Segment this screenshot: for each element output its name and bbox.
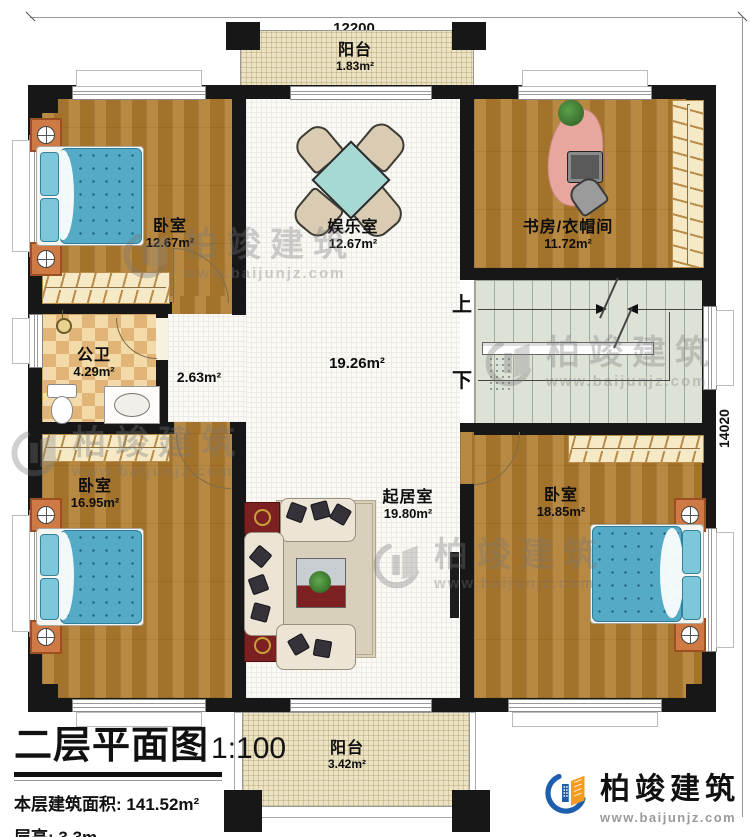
wall-corner [28, 684, 58, 712]
wardrobe-icon [42, 434, 170, 462]
floor-height-line: 层高: 3.3m [14, 823, 286, 837]
wall-corner [28, 85, 58, 113]
sliding-door [290, 86, 432, 100]
window-sill [12, 515, 30, 632]
wardrobe-icon [672, 100, 704, 268]
room-label-living: 起居室 19.80m² [358, 489, 458, 521]
wall-corner [686, 684, 716, 712]
toilet-icon [51, 396, 73, 424]
pillow-icon [40, 198, 59, 242]
pillow-icon [40, 578, 59, 620]
stair-landing-rail [482, 342, 654, 355]
window-sill [12, 140, 30, 252]
stair-direction-line [478, 380, 670, 381]
plant-icon [558, 100, 584, 126]
stairs-up-label: 上 [452, 288, 472, 317]
dimension-right-label: 14020 [716, 378, 732, 448]
wall-segment [460, 268, 716, 280]
brand-site: www.baijunjz.com [600, 810, 740, 825]
wall-segment [232, 85, 246, 315]
wardrobe-icon [42, 272, 170, 304]
room-label-bedroom-bl: 卧室 16.95m² [45, 478, 145, 510]
window-sill [76, 70, 202, 87]
brand-logo-icon [544, 764, 592, 822]
room-label-bedroom-br: 卧室 18.85m² [511, 487, 611, 519]
sliding-door [290, 699, 432, 712]
pillow-icon [682, 576, 701, 620]
window [72, 699, 206, 712]
side-table-decor [254, 637, 271, 654]
room-label-entertainment: 娱乐室 12.67m² [303, 219, 403, 251]
window-sill [522, 70, 648, 87]
room-corridor [168, 314, 246, 422]
nightstand-icon [30, 242, 62, 276]
side-table-decor [254, 509, 271, 526]
window-sill [12, 318, 30, 364]
pillar [452, 22, 486, 50]
window [72, 86, 206, 100]
plan-scale: 1:100 [211, 732, 286, 766]
floor-height-value: 3.3m [58, 828, 97, 837]
stair-direction-line [669, 312, 670, 381]
cushion [313, 639, 333, 659]
title-block: 二层平面图 1:100 本层建筑面积: 141.52m² 层高: 3.3m [14, 714, 286, 837]
floor-plan: 12200 14020 [0, 0, 750, 837]
stair-direction-line [638, 309, 702, 310]
window-sill [512, 712, 658, 727]
pillow-icon [682, 530, 701, 574]
pillow-icon [40, 534, 59, 576]
wall-segment [460, 85, 474, 280]
brand-name: 柏竣建筑 [600, 764, 740, 808]
page-title: 二层平面图 [14, 714, 209, 769]
room-label-bedroom-tl: 卧室 12.67m² [120, 218, 220, 250]
room-label-bathroom: 公卫 4.29m² [54, 347, 134, 379]
window [508, 699, 662, 712]
doorway [460, 432, 474, 484]
room-label-balcony-bottom: 阳台 3.42m² [297, 740, 397, 771]
brand-footer: 柏竣建筑 www.baijunjz.com [544, 764, 740, 825]
room-label-balcony-top: 阳台 1.83m² [305, 42, 405, 73]
room-label-hall: 19.26m² [307, 356, 407, 373]
floor-height-label: 层高: [14, 828, 54, 837]
sink-icon [114, 393, 150, 417]
ceiling-lamp-icon [56, 318, 72, 334]
window [518, 86, 652, 100]
lamp-cord [62, 310, 63, 319]
plant-icon [309, 571, 331, 593]
wardrobe-icon [568, 435, 704, 463]
title-underline [14, 772, 222, 777]
room-label-study: 书房/衣帽间 11.72m² [488, 219, 648, 251]
stair-hatch [488, 356, 514, 394]
dimension-line-top [30, 17, 742, 18]
tv-icon [450, 552, 459, 618]
floor-area-line: 本层建筑面积: 141.52m² [14, 790, 286, 815]
window-sill [716, 532, 734, 648]
pillar [226, 22, 260, 50]
pillar [452, 790, 490, 832]
window [703, 306, 717, 390]
doorway [156, 318, 168, 360]
doorway [174, 422, 230, 434]
stairs-down-label: 下 [452, 364, 472, 393]
window-sill [716, 310, 734, 386]
pillow-icon [40, 152, 59, 196]
dimension-line-right [742, 17, 743, 817]
title-underline-thin [14, 780, 222, 781]
window [29, 314, 43, 368]
stair-direction-line [478, 309, 596, 310]
bed-sheet-fold [660, 528, 684, 618]
room-label-corridor: 2.63m² [159, 370, 239, 386]
floor-area-label: 本层建筑面积: [14, 795, 122, 814]
floor-area-value: 141.52m² [126, 795, 199, 814]
